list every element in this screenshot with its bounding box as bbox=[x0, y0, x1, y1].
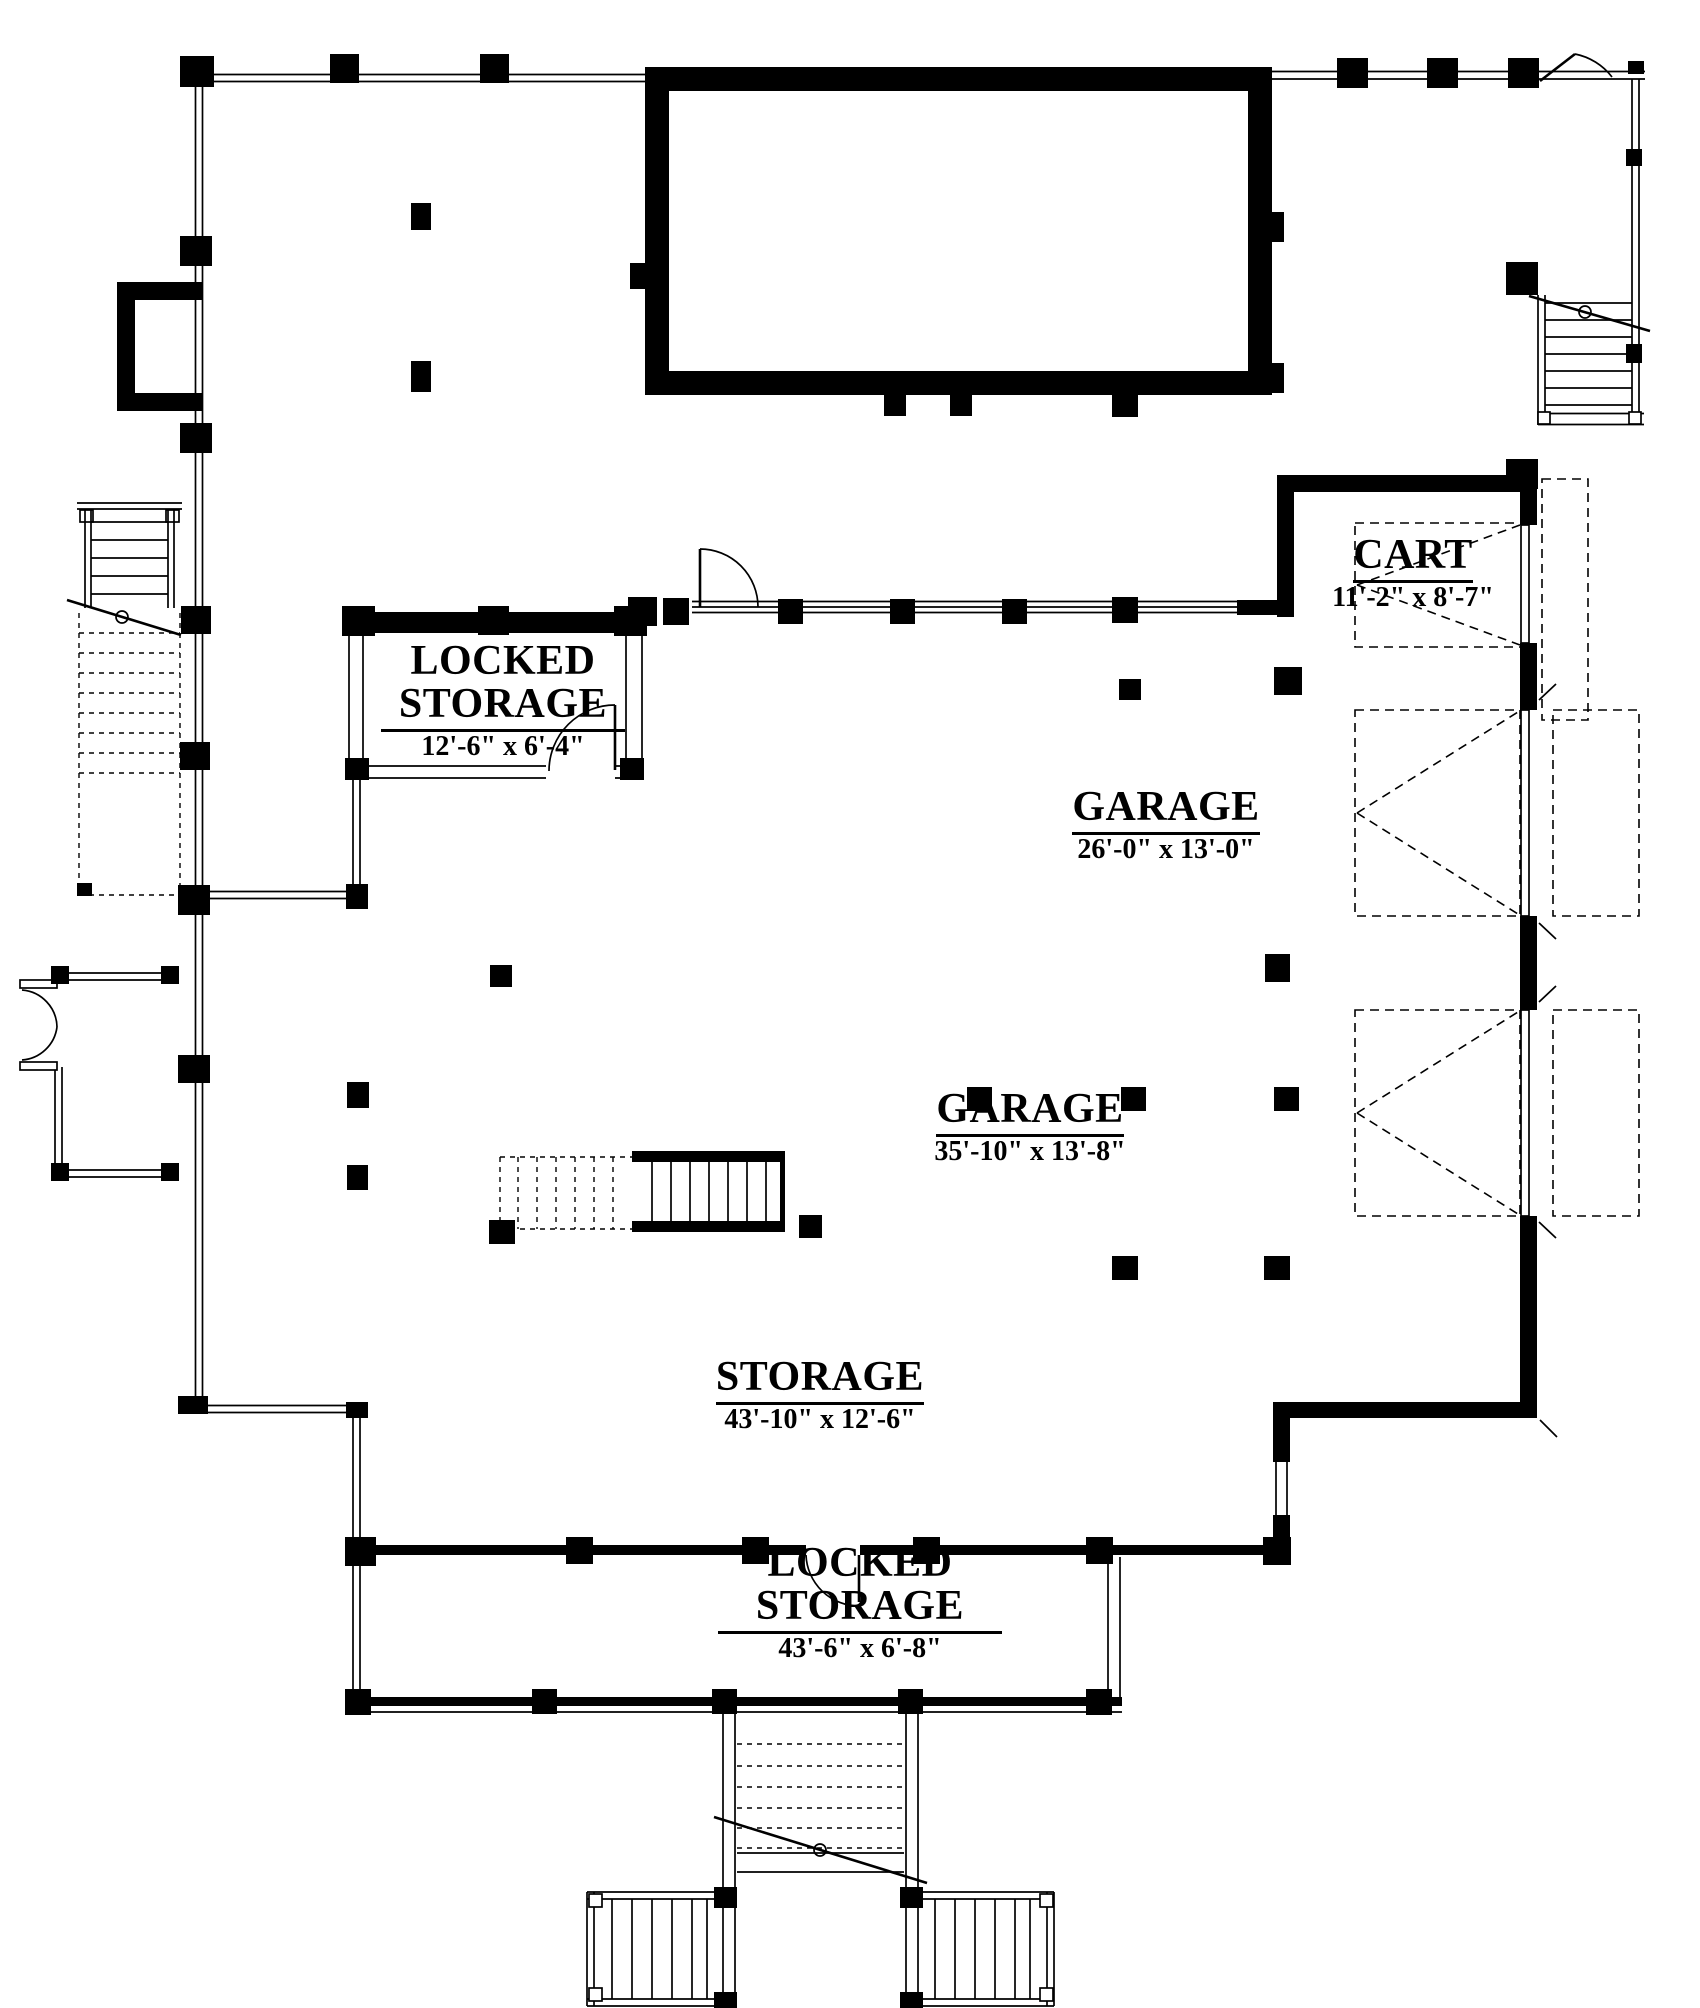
garage-rail-gate bbox=[700, 549, 758, 607]
room-label-locked-storage-bottom: LOCKED STORAGE 43'-6" x 6'-8" bbox=[718, 1542, 1002, 1663]
room-label-garage-upper: GARAGE 26'-0" x 13'-0" bbox=[1026, 786, 1306, 864]
stairs-south-entry bbox=[587, 1712, 1054, 2008]
stairs-north-east bbox=[1506, 262, 1650, 425]
upper-left-niche bbox=[117, 282, 203, 411]
room-name: GARAGE bbox=[936, 1088, 1123, 1137]
floor-plan: LOCKED STORAGE 12'-6" x 6'-4" GARAGE 26'… bbox=[0, 0, 1700, 2008]
floor-plan-linework bbox=[0, 0, 1700, 2008]
room-dims: 43'-6" x 6'-8" bbox=[778, 1633, 941, 1664]
room-dims: 26'-0" x 13'-0" bbox=[1077, 834, 1254, 865]
lower-left-porch bbox=[20, 973, 178, 1177]
room-name: GARAGE bbox=[1072, 786, 1259, 835]
room-dims: 35'-10" x 13'-8" bbox=[934, 1136, 1125, 1167]
stairs-center bbox=[489, 1151, 822, 1244]
room-label-locked-storage-upper: LOCKED STORAGE 12'-6" x 6'-4" bbox=[381, 640, 625, 761]
double-door-leaf-bottom bbox=[20, 1062, 57, 1070]
garage-door-lower bbox=[1355, 1010, 1639, 1216]
room-dims: 43'-10" x 12'-6" bbox=[724, 1404, 915, 1435]
room-name: STORAGE bbox=[716, 1356, 924, 1405]
garage-walls bbox=[1237, 459, 1557, 1547]
room-label-storage: STORAGE 43'-10" x 12'-6" bbox=[660, 1356, 980, 1434]
deck-gate-north-east bbox=[1540, 54, 1612, 81]
garage-door-upper bbox=[1355, 710, 1639, 916]
room-name: LOCKED STORAGE bbox=[718, 1542, 1002, 1634]
room-label-cart: CART 11'-2" x 8'-7" bbox=[1313, 534, 1513, 612]
room-name: CART bbox=[1353, 534, 1473, 583]
room-dims: 12'-6" x 6'-4" bbox=[421, 731, 584, 762]
stairs-upper-left bbox=[67, 503, 182, 896]
room-dims: 11'-2" x 8'-7" bbox=[1332, 582, 1494, 613]
room-label-garage-lower: GARAGE 35'-10" x 13'-8" bbox=[880, 1088, 1180, 1166]
pool-outline bbox=[630, 67, 1284, 395]
room-name: LOCKED STORAGE bbox=[381, 640, 625, 732]
